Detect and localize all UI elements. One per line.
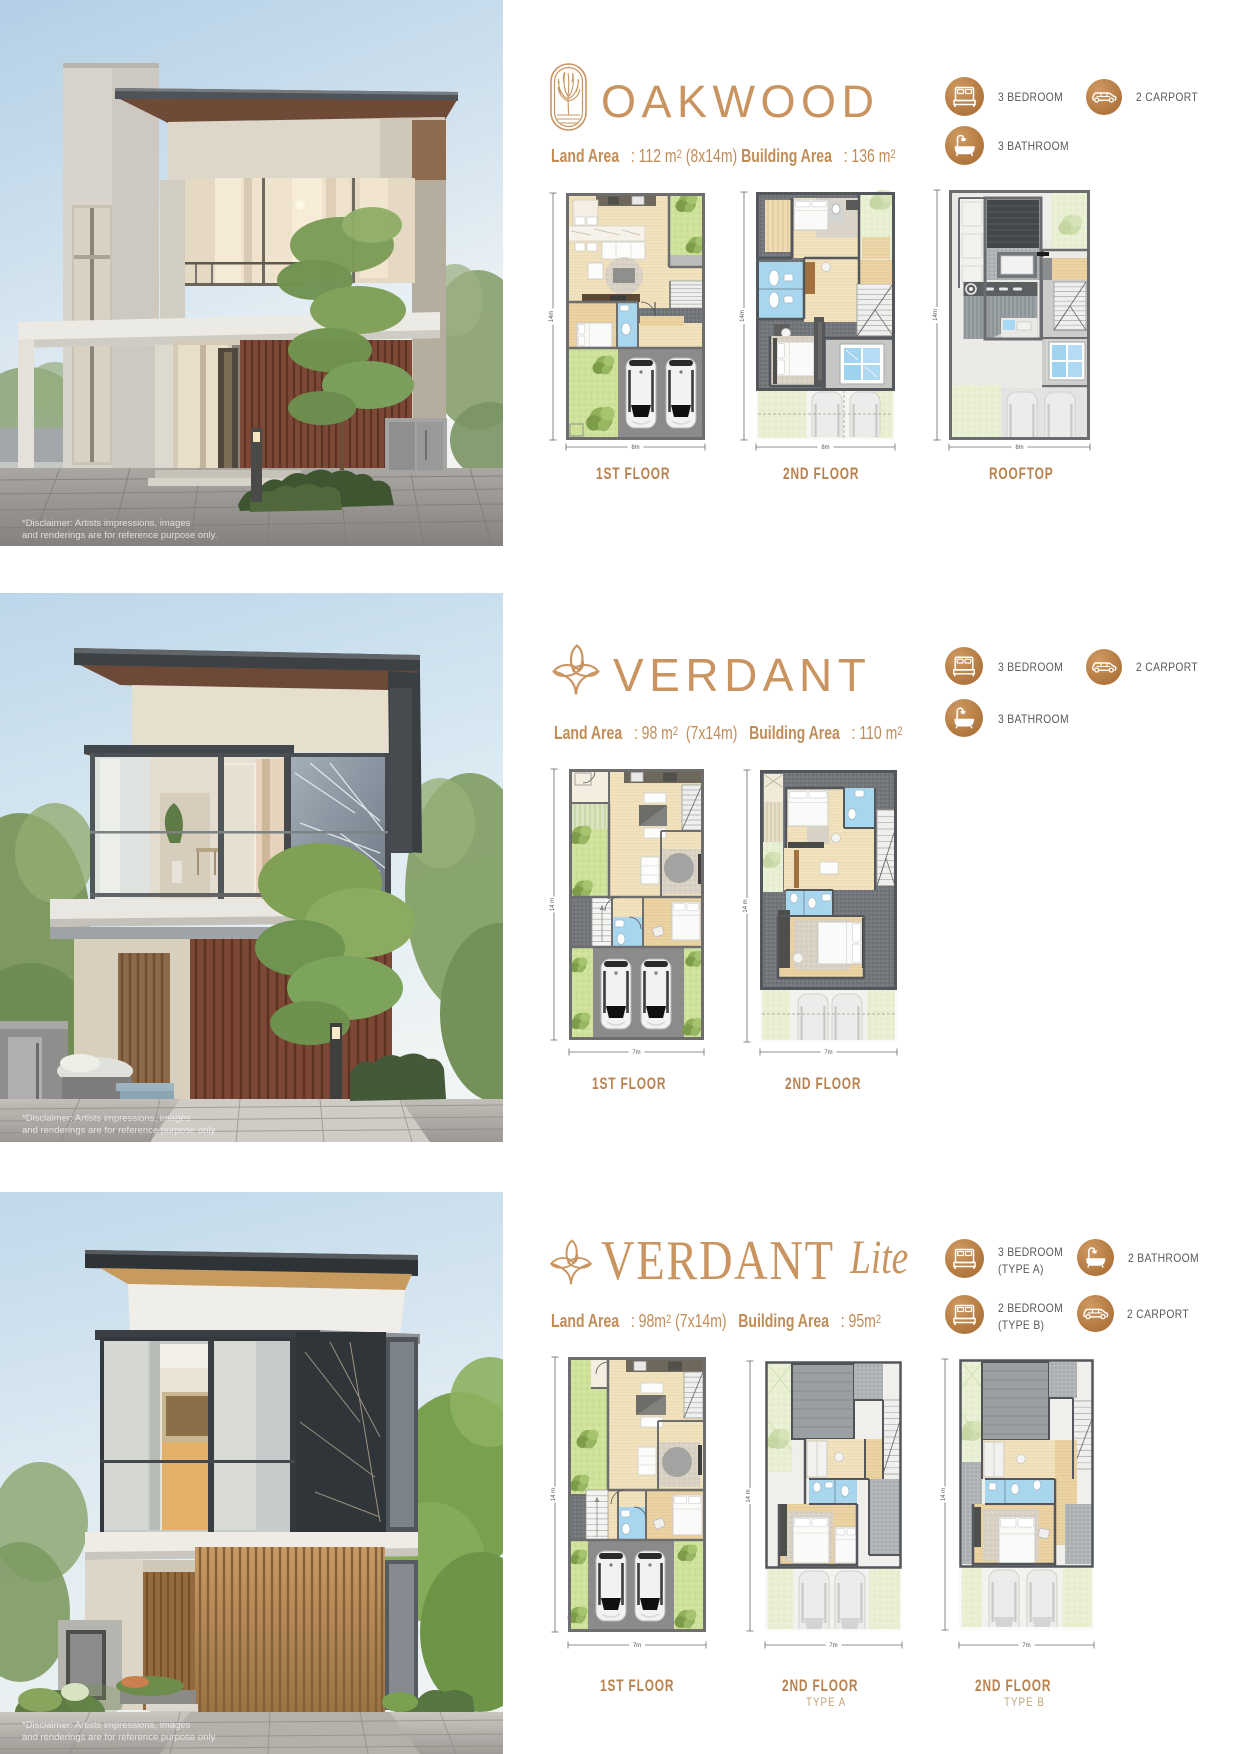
svg-text:and renderings are for referen: and renderings are for reference purpose… — [22, 530, 217, 541]
svg-text:14 m: 14 m — [550, 898, 556, 911]
svg-text:7m: 7m — [633, 1643, 641, 1649]
svg-text:14 m: 14 m — [743, 899, 749, 912]
svg-text:14m: 14m — [933, 309, 939, 321]
svg-text:14 m: 14 m — [941, 1488, 947, 1501]
svg-text:7m: 7m — [632, 1050, 640, 1056]
svg-text:14 m: 14 m — [746, 1489, 752, 1502]
svg-text:and renderings are for referen: and renderings are for reference purpose… — [22, 1732, 217, 1743]
svg-text:*Disclaimer: Artists impressio: *Disclaimer: Artists impressions, images — [22, 1720, 191, 1731]
svg-text:8m: 8m — [631, 445, 639, 451]
svg-text:and renderings are for referen: and renderings are for reference purpose… — [22, 1125, 217, 1136]
svg-text:14m: 14m — [740, 310, 746, 322]
svg-text:8m: 8m — [821, 445, 829, 451]
svg-text:*Disclaimer: Artists impressio: *Disclaimer: Artists impressions, images — [22, 518, 191, 529]
svg-text:7m: 7m — [829, 1643, 837, 1649]
svg-text:14 m: 14 m — [551, 1488, 557, 1501]
svg-text:8m: 8m — [1015, 445, 1023, 451]
svg-text:7m: 7m — [1022, 1643, 1030, 1649]
svg-text:*Disclaimer: Artists impressio: *Disclaimer: Artists impressions, images — [22, 1113, 191, 1124]
svg-text:7m: 7m — [824, 1050, 832, 1056]
svg-text:14m: 14m — [549, 311, 555, 323]
